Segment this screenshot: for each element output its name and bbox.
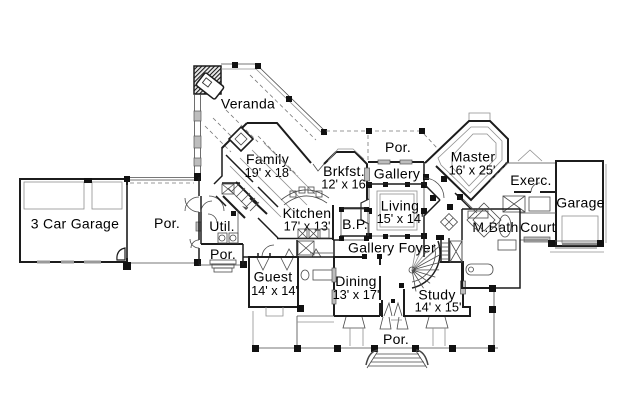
svg-text:Garage: Garage (556, 195, 605, 211)
svg-text:Por.: Por. (210, 246, 236, 262)
svg-text:Gallery Foyer: Gallery Foyer (348, 240, 436, 256)
svg-text:Exerc.: Exerc. (510, 172, 551, 188)
svg-text:16' x 25': 16' x 25' (449, 163, 496, 178)
svg-text:12' x 16: 12' x 16 (321, 177, 365, 192)
svg-text:19' x 18': 19' x 18' (245, 165, 292, 180)
svg-text:15' x 14': 15' x 14' (377, 211, 424, 226)
svg-text:Court: Court (520, 219, 556, 235)
svg-text:Gallery: Gallery (374, 166, 420, 182)
svg-text:14' x 14': 14' x 14' (251, 283, 298, 298)
svg-text:Por.: Por. (154, 215, 180, 231)
svg-text:Veranda: Veranda (221, 96, 275, 112)
svg-text:13' x 17': 13' x 17' (333, 287, 380, 302)
svg-text:14' x 15': 14' x 15' (415, 300, 462, 315)
svg-text:Por.: Por. (383, 331, 409, 347)
svg-text:Util.: Util. (209, 218, 235, 234)
svg-text:B.P.: B.P. (342, 216, 368, 232)
svg-text:Por.: Por. (385, 139, 411, 155)
svg-text:3 Car Garage: 3 Car Garage (31, 216, 119, 232)
